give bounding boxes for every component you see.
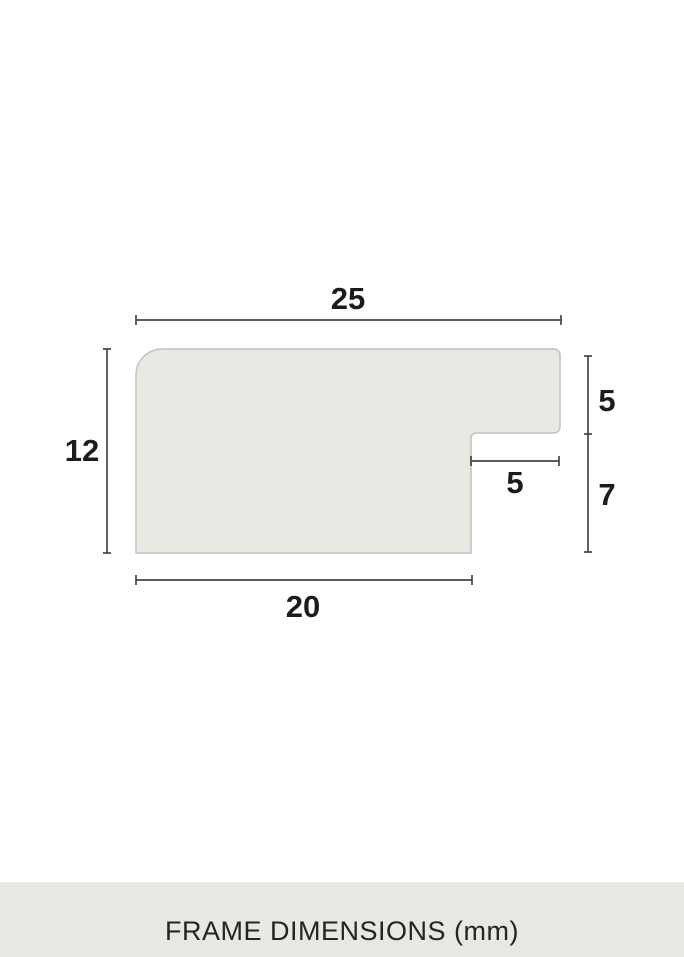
svg-text:5: 5	[506, 465, 523, 500]
svg-text:7: 7	[598, 477, 615, 512]
svg-text:FRAME DIMENSIONS (mm): FRAME DIMENSIONS (mm)	[165, 916, 519, 946]
svg-text:20: 20	[286, 589, 320, 624]
svg-text:12: 12	[65, 433, 99, 468]
svg-text:25: 25	[331, 281, 365, 316]
svg-text:5: 5	[598, 383, 615, 418]
